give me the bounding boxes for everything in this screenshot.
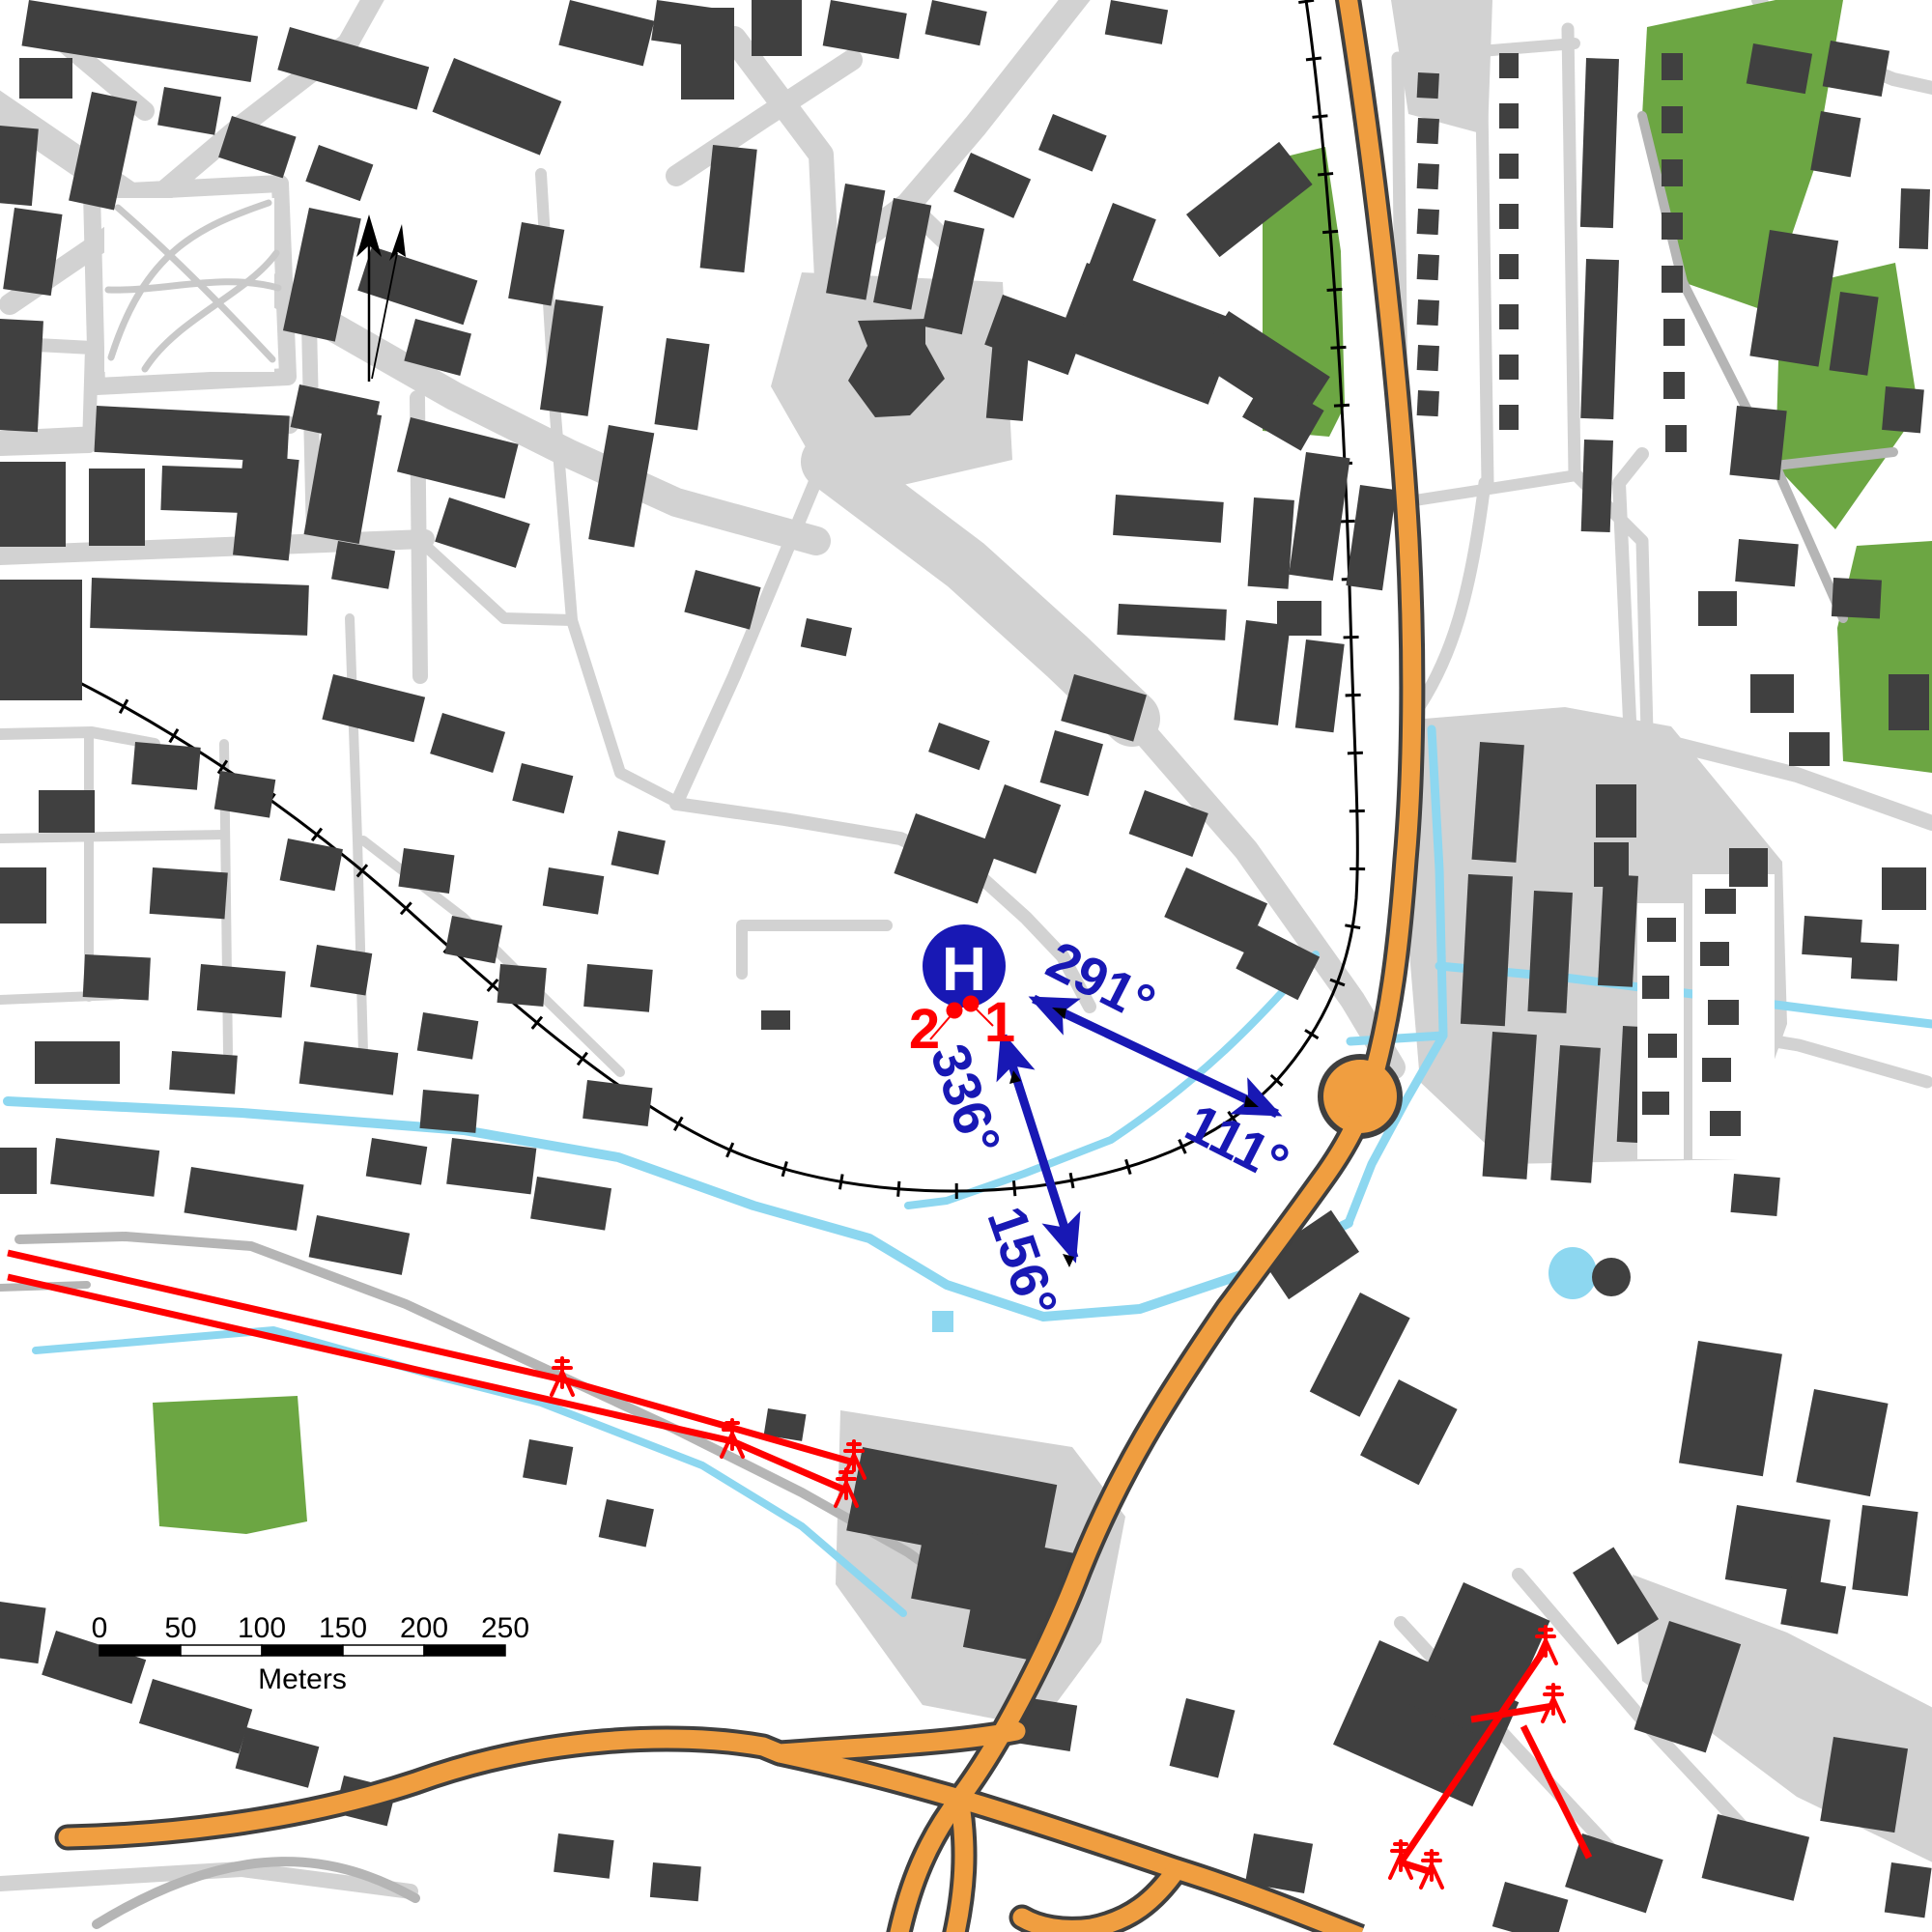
scale-tick-150: 150	[319, 1612, 367, 1644]
landing-point-2-dot	[947, 1003, 963, 1019]
bearing-label-336: 336°	[919, 1037, 1012, 1162]
small-basin	[932, 1311, 953, 1332]
scale-tick-100: 100	[238, 1612, 286, 1644]
scale-tick-250: 250	[481, 1612, 529, 1644]
scale-unit-label: Meters	[258, 1663, 347, 1695]
approach-arrow-291-111	[1034, 999, 1277, 1114]
pond	[1548, 1247, 1597, 1299]
helipad-h-icon: H	[942, 934, 986, 1004]
scale-tick-0: 0	[92, 1612, 108, 1644]
landing-point-1-dot	[963, 996, 980, 1012]
round-structure	[1592, 1258, 1631, 1296]
landing-point-1-label: 1	[984, 991, 1015, 1054]
bearing-label-291: 291°	[1037, 929, 1165, 1035]
scale-tick-50: 50	[164, 1612, 196, 1644]
city-map: 0 50 100 150 200 250 Meters H 2 1 291° 1…	[0, 0, 1932, 1932]
bearing-label-156: 156°	[976, 1199, 1069, 1324]
helipad-and-arrows: H 2 1 291° 111° 336° 156°	[909, 924, 1298, 1324]
bearing-label-111: 111°	[1177, 1092, 1298, 1194]
map-canvas: 0 50 100 150 200 250 Meters H 2 1 291° 1…	[0, 0, 1932, 1932]
scale-tick-200: 200	[400, 1612, 448, 1644]
